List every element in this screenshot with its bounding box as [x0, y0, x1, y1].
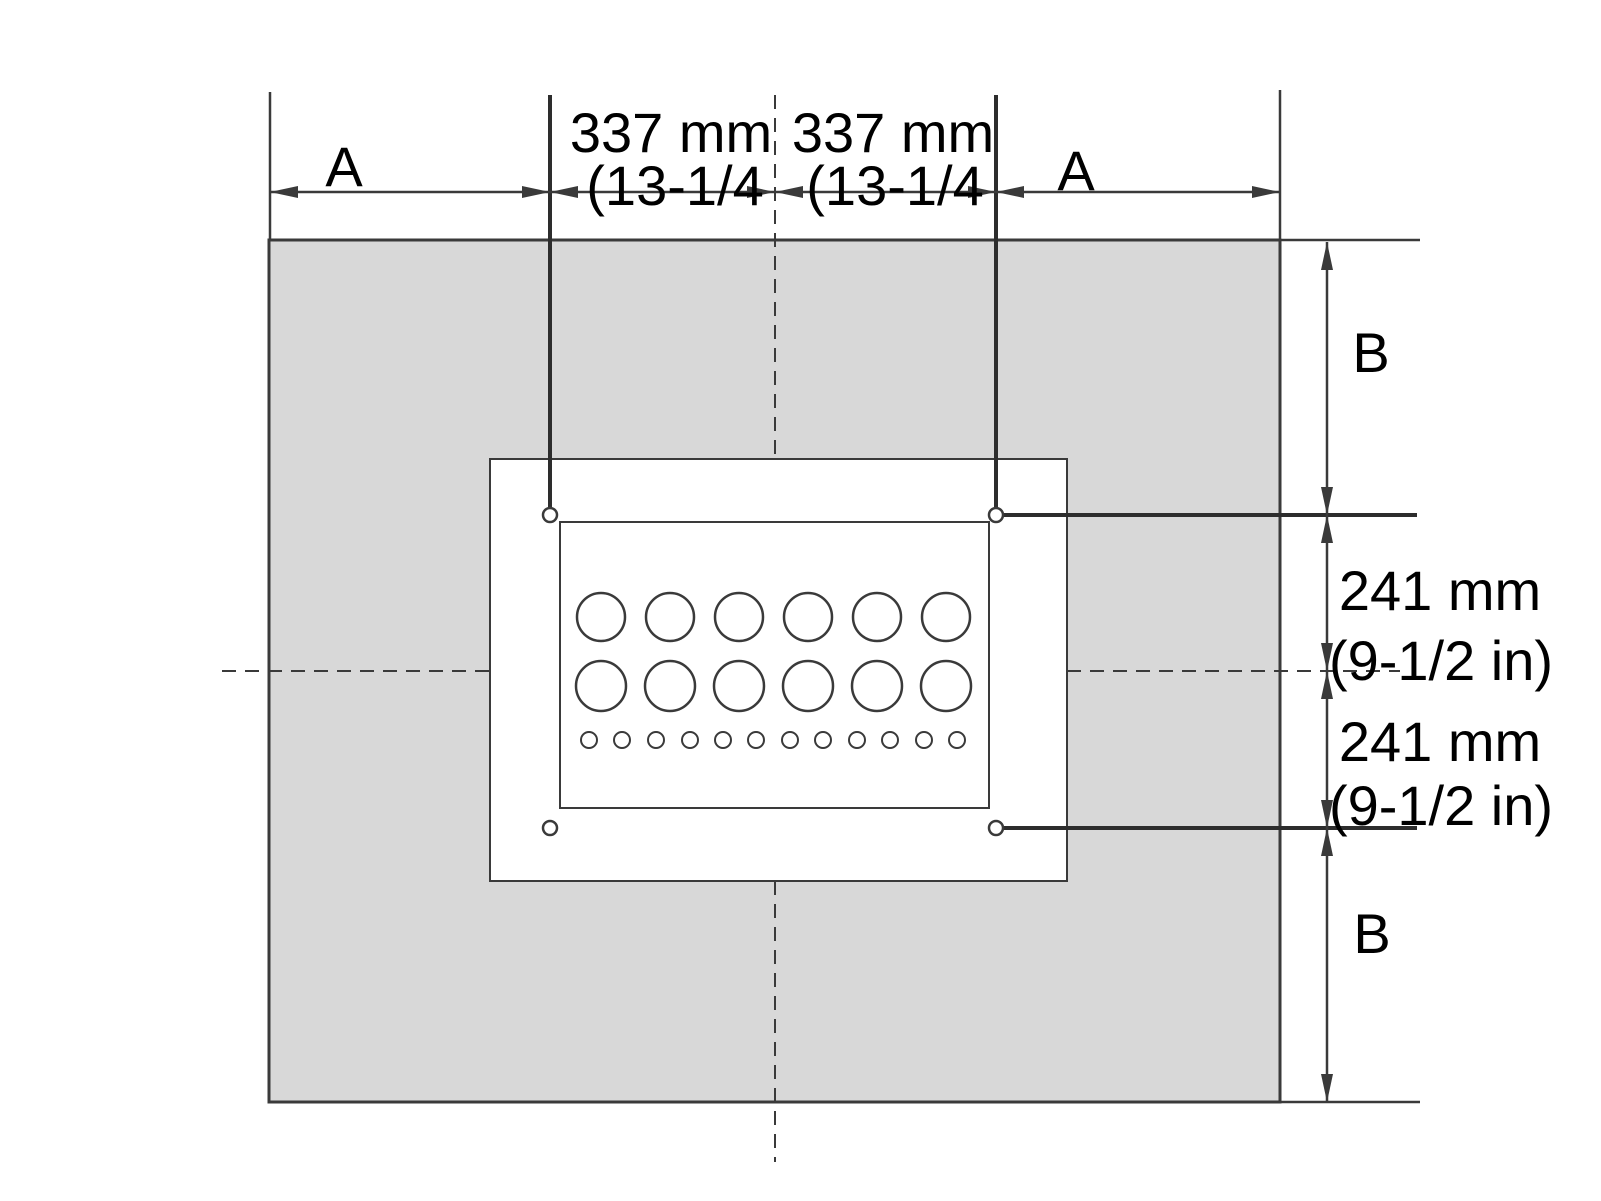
knockout-small: [614, 732, 630, 748]
label-b-bottom: B: [1353, 902, 1390, 965]
arrowhead: [1321, 487, 1333, 515]
knockout-large: [576, 661, 626, 711]
knockout-small: [882, 732, 898, 748]
knockout-large: [852, 661, 902, 711]
knockout-small: [815, 732, 831, 748]
grille-outline: [560, 522, 989, 808]
knockout-large: [853, 593, 901, 641]
mounting-hole-top-right: [989, 508, 1003, 522]
knockout-large: [783, 661, 833, 711]
knockout-small: [949, 732, 965, 748]
knockout-large: [921, 661, 971, 711]
knockout-small: [916, 732, 932, 748]
label-a-right: A: [1057, 139, 1095, 202]
arrowhead: [1321, 515, 1333, 543]
label-b-top: B: [1352, 321, 1389, 384]
arrowhead: [1321, 242, 1333, 270]
arrowhead: [996, 186, 1024, 198]
arrowhead: [775, 186, 803, 198]
arrowhead: [1252, 186, 1280, 198]
knockout-large: [646, 593, 694, 641]
knockout-large: [645, 661, 695, 711]
mounting-hole-bottom-right: [989, 821, 1003, 835]
label-241-bottom-inch: (9-1/2 in): [1329, 774, 1553, 837]
installation-cutout-diagram: A 337 mm (13-1/4 337 mm (13-1/4 A B 241 …: [0, 0, 1601, 1201]
knockout-large: [715, 593, 763, 641]
arrowhead: [270, 186, 298, 198]
knockout-large: [577, 593, 625, 641]
knockout-small: [849, 732, 865, 748]
knockout-large: [922, 593, 970, 641]
arrowhead: [1321, 1074, 1333, 1102]
knockout-small: [581, 732, 597, 748]
knockout-small: [782, 732, 798, 748]
knockout-small: [648, 732, 664, 748]
label-241-top-inch: (9-1/2 in): [1329, 629, 1553, 692]
label-337-right-inch: (13-1/4: [806, 154, 983, 217]
label-241-bottom-mm: 241 mm: [1339, 710, 1541, 773]
mounting-hole-top-left: [543, 508, 557, 522]
arrowhead: [550, 186, 578, 198]
mounting-hole-bottom-left: [543, 821, 557, 835]
label-241-top-mm: 241 mm: [1339, 559, 1541, 622]
knockout-small: [715, 732, 731, 748]
label-337-left-inch: (13-1/4: [586, 154, 763, 217]
knockout-small: [682, 732, 698, 748]
knockout-small: [748, 732, 764, 748]
knockout-large: [714, 661, 764, 711]
diagram-canvas: A 337 mm (13-1/4 337 mm (13-1/4 A B 241 …: [0, 0, 1601, 1201]
arrowhead: [522, 186, 550, 198]
label-a-left: A: [325, 135, 363, 198]
knockout-large: [784, 593, 832, 641]
